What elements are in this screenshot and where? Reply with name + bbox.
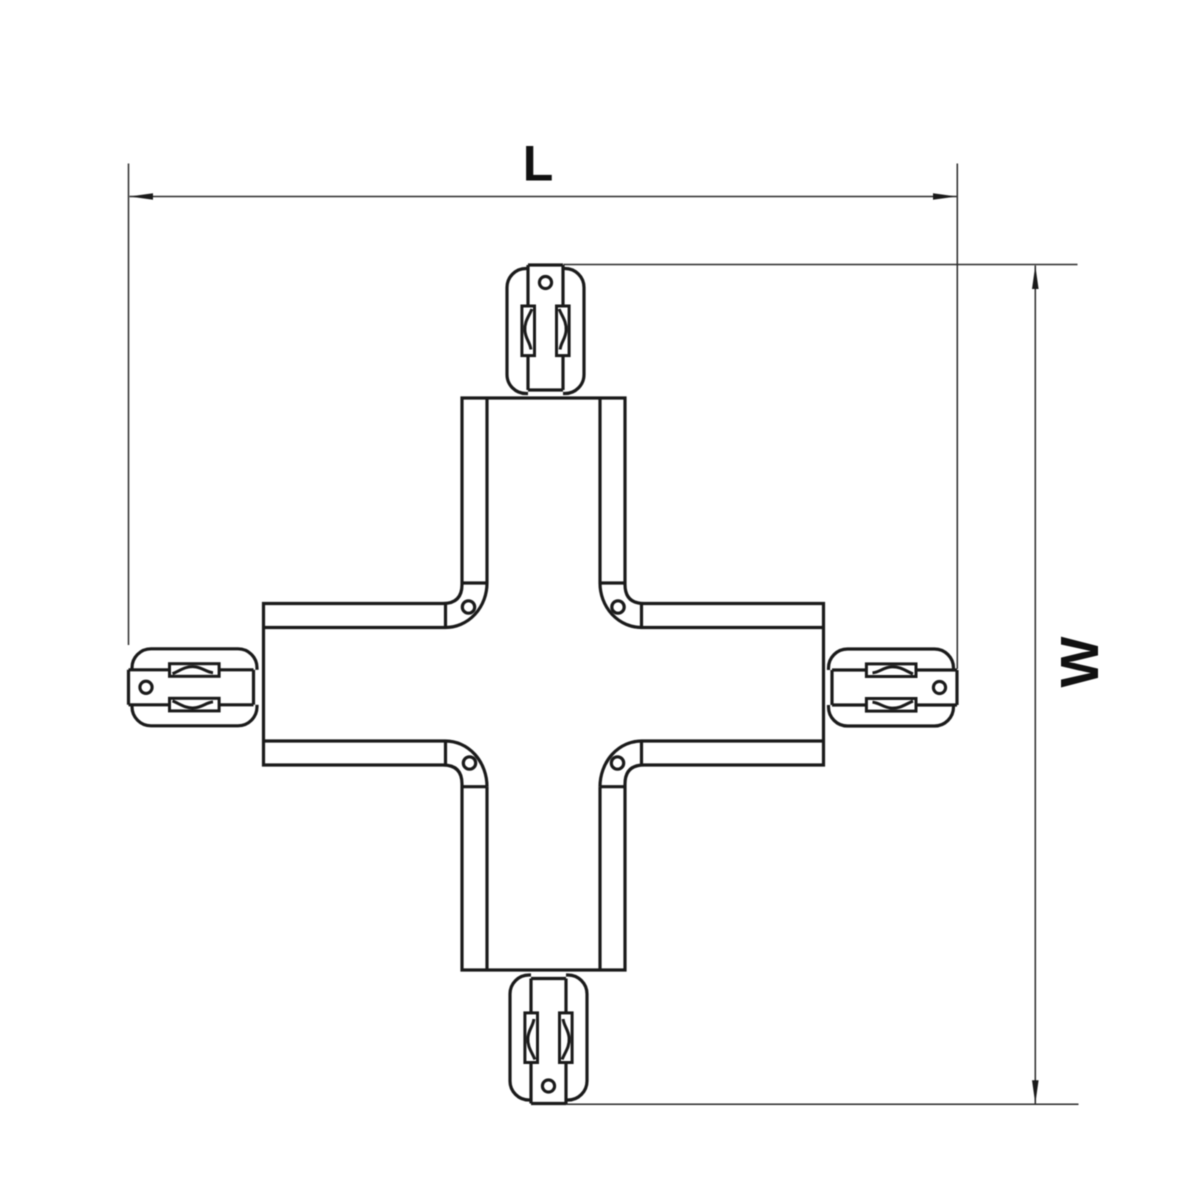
- svg-text:W: W: [1050, 636, 1110, 687]
- svg-text:L: L: [523, 136, 554, 192]
